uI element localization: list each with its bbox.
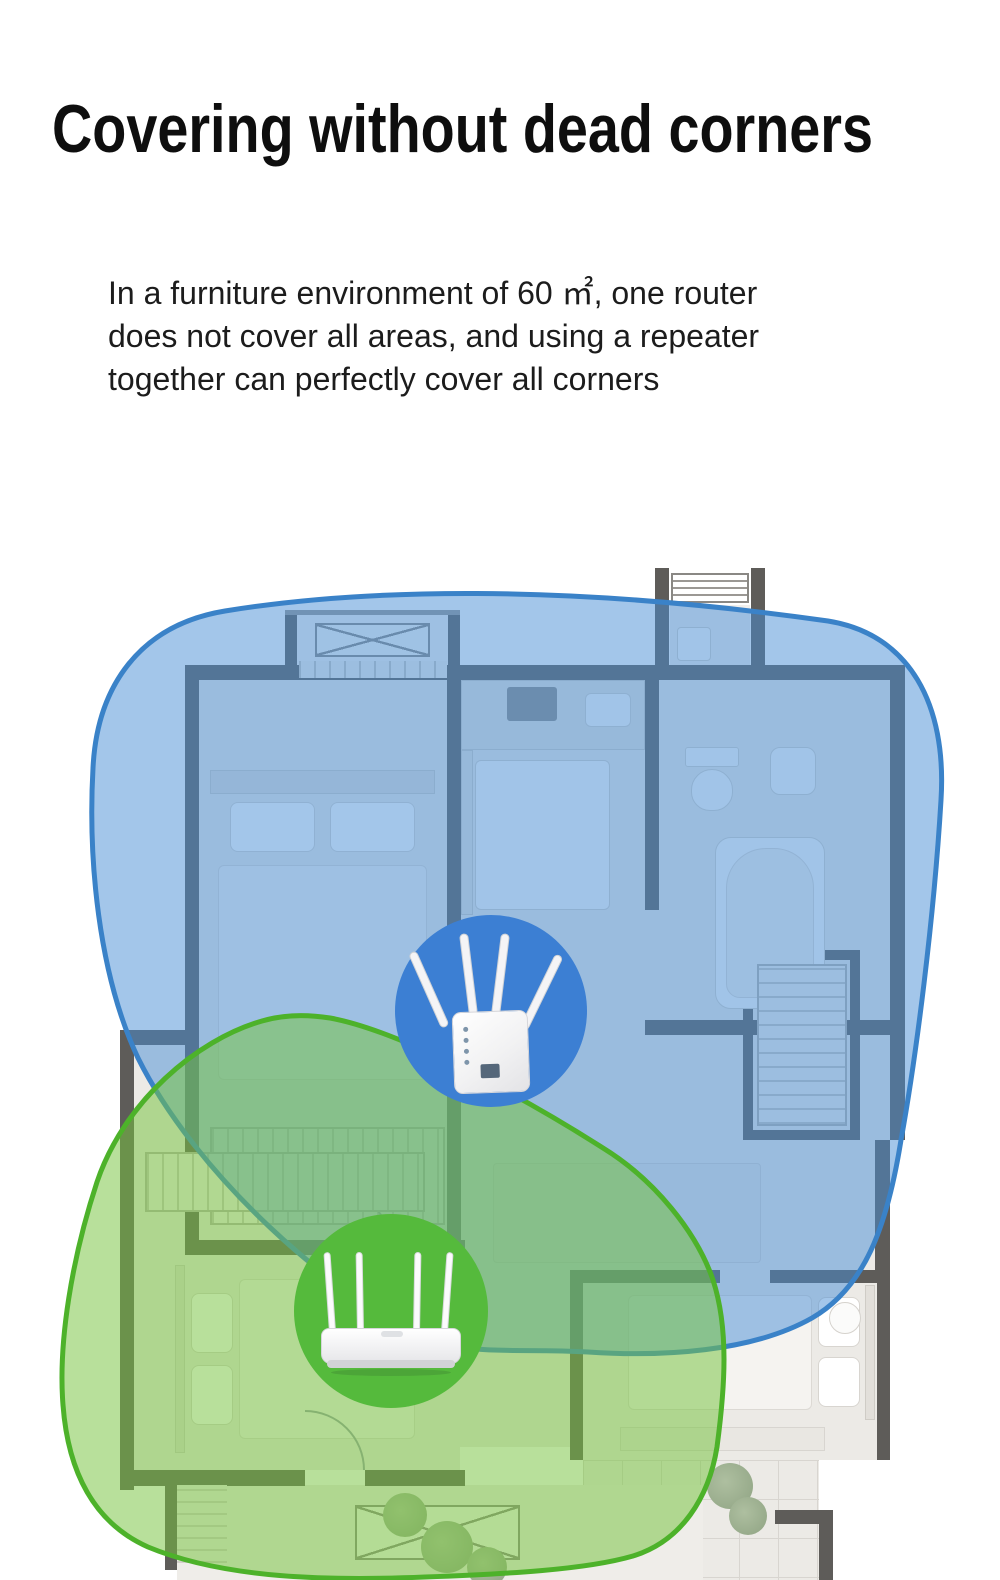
page-title: Covering without dead corners xyxy=(52,90,873,168)
wall xyxy=(850,950,860,1140)
pillow xyxy=(818,1357,860,1407)
wall xyxy=(120,1030,198,1045)
wall xyxy=(743,1130,860,1140)
antenna xyxy=(408,950,450,1029)
wall xyxy=(655,568,669,680)
wall xyxy=(448,610,460,680)
antenna xyxy=(413,1252,421,1332)
wall xyxy=(165,1485,177,1570)
wall xyxy=(875,1140,890,1270)
closet xyxy=(757,964,847,1126)
washing-machine xyxy=(677,627,711,661)
antenna xyxy=(459,933,478,1015)
bathroom-sink xyxy=(770,747,816,795)
side-table xyxy=(829,1302,861,1334)
wall xyxy=(120,1030,134,1490)
marketing-page: Covering without dead corners In a furni… xyxy=(0,0,1000,1580)
wall xyxy=(751,568,765,680)
repeater-body xyxy=(452,1010,531,1095)
kitchen-sink xyxy=(585,693,631,727)
balcony-steps xyxy=(177,1485,227,1573)
antenna xyxy=(491,933,510,1015)
router-body xyxy=(321,1328,461,1364)
window-sill xyxy=(285,610,460,615)
toilet-tank xyxy=(685,747,739,767)
headboard xyxy=(865,1285,875,1420)
router-base xyxy=(327,1360,455,1368)
rug xyxy=(620,1427,825,1451)
antenna xyxy=(356,1252,364,1332)
toilet xyxy=(685,747,739,813)
pillow xyxy=(230,802,315,852)
indicator-led xyxy=(463,1027,468,1032)
wall xyxy=(365,1470,465,1486)
wall xyxy=(285,610,297,680)
pillow xyxy=(330,802,415,852)
router-notch xyxy=(381,1331,403,1337)
wall xyxy=(570,1270,583,1460)
plant xyxy=(467,1547,507,1580)
wardrobe xyxy=(145,1152,425,1212)
indicator-led xyxy=(464,1049,469,1054)
utility-window xyxy=(671,573,749,603)
wall xyxy=(120,1470,305,1486)
wall xyxy=(819,1510,833,1580)
wall xyxy=(877,1270,890,1460)
plant xyxy=(729,1497,767,1535)
balcony-grille xyxy=(299,661,447,678)
page-description: In a furniture environment of 60 ㎡, one … xyxy=(108,272,908,401)
toilet-bowl xyxy=(691,769,733,811)
headboard xyxy=(210,770,435,794)
wall xyxy=(645,680,659,910)
indicator-led xyxy=(464,1060,469,1065)
wall xyxy=(890,665,905,1140)
antenna xyxy=(441,1252,454,1332)
wall xyxy=(770,1270,877,1283)
indicator-led xyxy=(463,1038,468,1043)
brand-label xyxy=(480,1064,499,1079)
pillow xyxy=(191,1293,233,1353)
dining-table xyxy=(475,760,610,910)
headboard xyxy=(175,1265,185,1453)
stove xyxy=(507,687,557,721)
balcony-window xyxy=(315,623,430,657)
duvet xyxy=(628,1295,812,1410)
antenna xyxy=(323,1252,336,1332)
plant xyxy=(383,1493,427,1537)
kitchen-counter xyxy=(461,750,473,915)
wifi-router-icon xyxy=(321,1252,461,1378)
router-coverage-circle xyxy=(294,1214,488,1408)
rug xyxy=(493,1163,761,1263)
duvet xyxy=(218,865,427,1080)
wifi-repeater-icon xyxy=(435,933,547,1093)
repeater-coverage-circle xyxy=(395,915,587,1107)
plant xyxy=(421,1521,473,1573)
pillow xyxy=(191,1365,233,1425)
router-shadow xyxy=(331,1369,451,1376)
wall xyxy=(570,1270,720,1283)
